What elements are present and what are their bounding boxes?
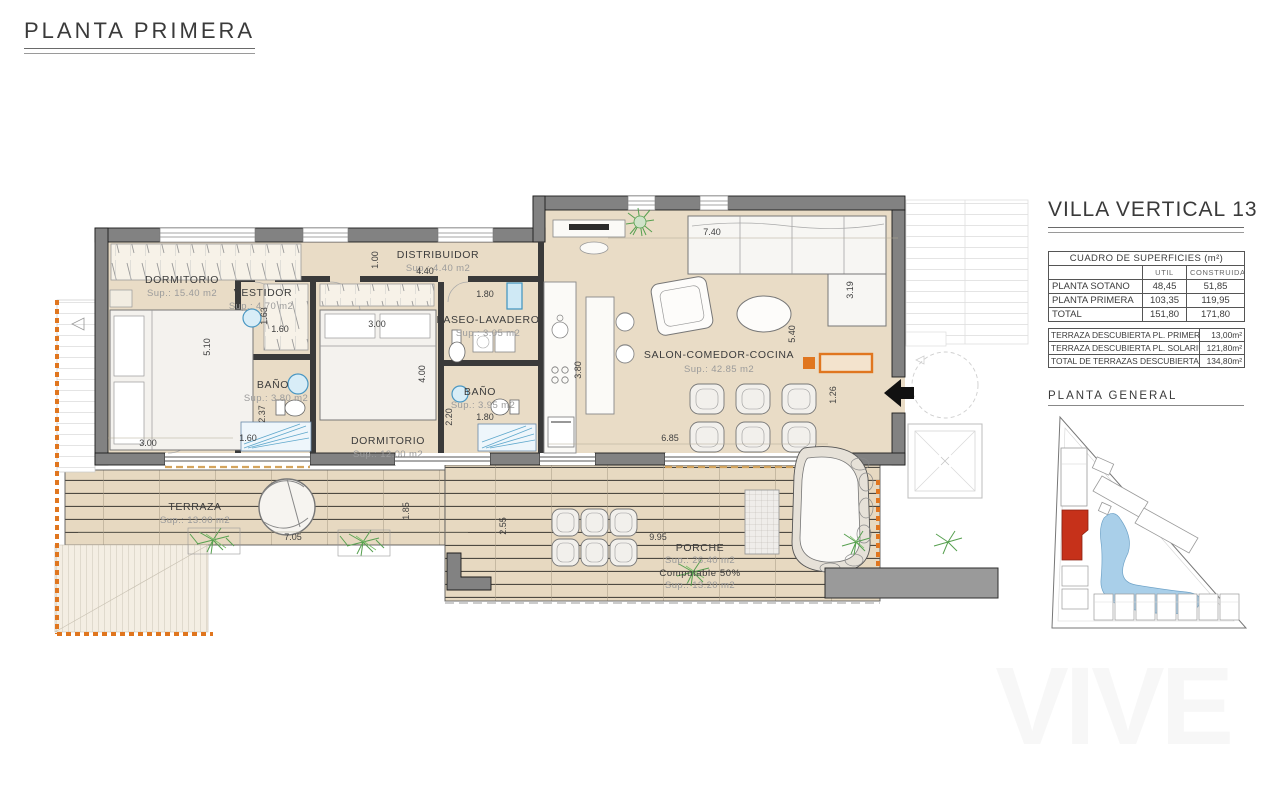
room-note-label: Computable 50% [659,568,740,579]
surfaces-row-util: 151,80 [1143,308,1187,322]
dim-label: 3.80 [573,361,583,379]
terrace-row-name: TERRAZA DESCUBIERTA PL. PRIMERA [1049,329,1200,342]
room-sup-label: Sup.: 13.00 m2 [160,515,230,526]
room-name-label: DISTRIBUIDOR [397,249,479,261]
dim-label: 7.40 [703,227,721,237]
villa-title: VILLA VERTICAL 13 [1048,198,1244,222]
surfaces-table: CUADRO DE SUPERFICIES (m²) UTIL CONSTRUI… [1048,251,1245,322]
table-row: PLANTA SOTANO 48,45 51,85 [1049,280,1245,294]
dim-label: 1.60 [271,324,289,334]
elevator-shaft [908,424,982,498]
villa-title-underline [1048,227,1244,233]
room-name-label: DORMITORIO [145,274,219,286]
dim-label: 3.00 [368,319,386,329]
terraces-table: TERRAZA DESCUBIERTA PL. PRIMERA 13,00m² … [1048,328,1245,368]
dim-label: 6.85 [661,433,679,443]
room-note-sup-label: Sup.: 13.20 m2 [665,580,735,591]
highlighted-console [820,354,872,372]
room-sup-label: Sup.: 26.40 m2 [665,555,735,566]
dim-label: 4.40 [416,266,434,276]
surfaces-table-title: CUADRO DE SUPERFICIES (m²) [1049,252,1245,266]
page-title: PLANTA PRIMERA [24,18,255,44]
exterior-side-stair [57,300,95,472]
dim-label: 3.19 [845,281,855,299]
room-sup-label: Sup.: 3.80 m2 [244,393,308,404]
surfaces-col-construida: CONSTRUIDA [1187,266,1245,280]
dim-label: 1.80 [476,289,494,299]
surfaces-row-construida: 51,85 [1187,280,1245,294]
room-name-label: BAÑO [464,385,496,398]
dim-label: 1.00 [370,251,380,269]
dim-label: 4.00 [417,365,427,383]
dim-label: 5.40 [787,325,797,343]
dim-label: 7.05 [284,532,302,542]
dim-label: 5.10 [202,338,212,356]
room-name-label: PASEO-LAVADERO [437,314,540,326]
table-row: PLANTA PRIMERA 103,35 119,95 [1049,294,1245,308]
exterior-stairwell [906,200,1028,418]
room-name-label: BAÑO [257,378,289,391]
room-sup-label: Sup.: 3.95 m2 [451,400,515,411]
surfaces-row-construida: 171,80 [1187,308,1245,322]
table-row: TOTAL 151,80 171,80 [1049,308,1245,322]
terrace-row-value: 13,00m² [1200,329,1245,342]
site-plan-title: PLANTA GENERAL [1048,390,1244,402]
floor-plan: DORMITORIO Sup.: 15.40 m2 VESTIDOR Sup.:… [48,182,1048,642]
room-name-label: DORMITORIO [351,435,425,447]
dim-label: 2.20 [444,408,454,426]
site-plan-title-underline [1048,405,1244,406]
terrace-row-value: 134,80m² [1200,355,1245,368]
site-villas-row [1094,594,1239,620]
table-row: TOTAL DE TERRAZAS DESCUBIERTAS 134,80m² [1049,355,1245,368]
info-panel: VILLA VERTICAL 13 CUADRO DE SUPERFICIES … [1048,198,1244,639]
dim-label: 3.00 [139,438,157,448]
terrace-row-name: TERRAZA DESCUBIERTA PL. SOLARIUM [1049,342,1200,355]
dim-label: 1.80 [476,412,494,422]
dim-label: 2.37 [257,405,267,423]
room-sup-label: Sup.: 42.85 m2 [684,364,754,375]
dim-label: 1.26 [828,386,838,404]
room-sup-label: Sup.: 15.40 m2 [147,288,217,299]
watermark: VIVE [995,643,1230,770]
dim-label: 1.85 [401,502,411,520]
page-title-underline [24,48,255,54]
terrace-row-value: 121,80m² [1200,342,1245,355]
surfaces-row-util: 48,45 [1143,280,1187,294]
room-name-label: PORCHE [676,542,725,554]
surfaces-row-name: PLANTA SOTANO [1049,280,1143,294]
site-plan [1048,412,1248,634]
table-row: TERRAZA DESCUBIERTA PL. SOLARIUM 121,80m… [1049,342,1245,355]
page-title-block: PLANTA PRIMERA [24,18,255,54]
surfaces-row-name: TOTAL [1049,308,1143,322]
room-sup-label: Sup.: 3.05 m2 [456,328,520,339]
dim-label: 1.63 [259,307,269,325]
room-name-label: VESTIDOR [234,287,292,299]
table-row: TERRAZA DESCUBIERTA PL. PRIMERA 13,00m² [1049,329,1245,342]
surfaces-col-util: UTIL [1143,266,1187,280]
dim-label: 2.55 [498,517,508,535]
room-name-label: TERRAZA [168,501,221,513]
room-sup-label: Sup.: 12.00 m2 [353,449,423,460]
dim-label: 1.60 [239,433,257,443]
surfaces-row-util: 103,35 [1143,294,1187,308]
dim-label: 9.95 [649,532,667,542]
room-name-label: SALON-COMEDOR-COCINA [644,349,794,361]
surfaces-col-empty [1049,266,1143,280]
terrace-row-name: TOTAL DE TERRAZAS DESCUBIERTAS [1049,355,1200,368]
surfaces-row-name: PLANTA PRIMERA [1049,294,1143,308]
surfaces-row-construida: 119,95 [1187,294,1245,308]
